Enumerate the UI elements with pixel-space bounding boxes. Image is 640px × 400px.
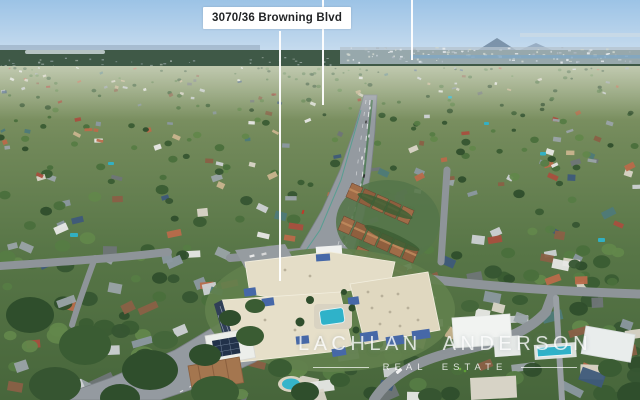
- river: [410, 55, 640, 59]
- agency-watermark: LACHLAN ANDERSON REAL ESTATE: [288, 333, 602, 373]
- background-pointer-line-2: [411, 0, 413, 60]
- agency-tagline: REAL ESTATE: [383, 362, 508, 373]
- distant-lake: [25, 50, 105, 54]
- agency-tagline-row: REAL ESTATE: [288, 362, 602, 373]
- atmospheric-haze: [0, 66, 640, 120]
- subject-pointer-line: [279, 31, 281, 281]
- tagline-rule-right: [521, 367, 577, 368]
- address-label: 3070/36 Browning Blvd: [203, 7, 351, 29]
- agency-name: LACHLAN ANDERSON: [288, 333, 602, 356]
- aerial-photo: 3070/36 Browning Blvd LACHLAN ANDERSON R…: [0, 0, 640, 400]
- tagline-rule-left: [313, 367, 369, 368]
- complex-pool: [319, 307, 345, 325]
